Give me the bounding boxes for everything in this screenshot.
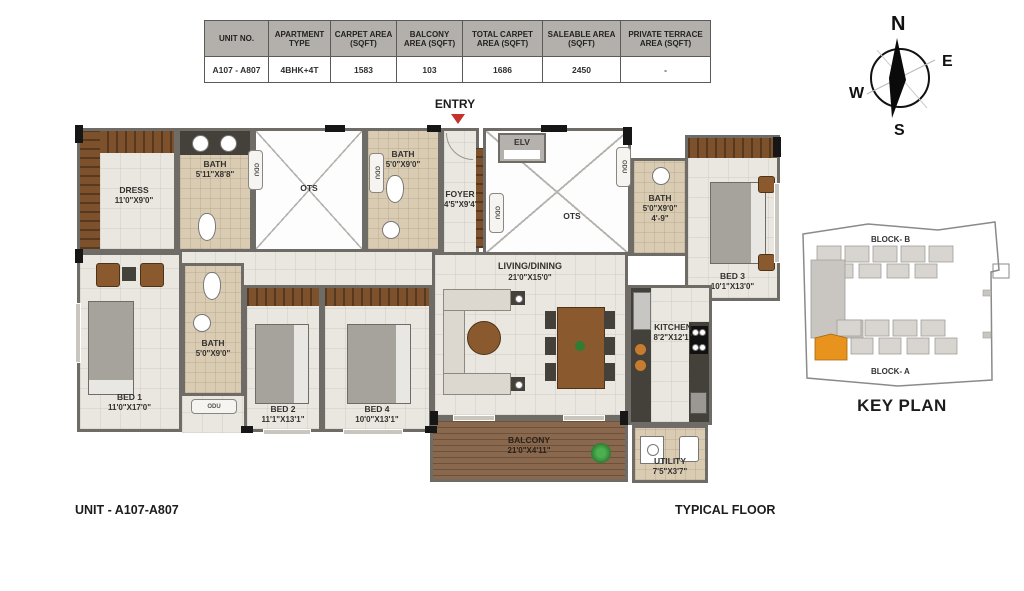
balcony-door	[453, 415, 495, 421]
room-label: BED 1	[80, 392, 179, 403]
col-carpet-area: CARPET AREA (SQFT)	[331, 21, 397, 57]
dining-chair	[545, 311, 556, 329]
entry-label: ENTRY	[425, 97, 485, 111]
site-mark	[983, 290, 991, 296]
room-balcony: BALCONY 21'0"X4'11"	[430, 418, 628, 482]
room-label: BED 3	[688, 271, 777, 282]
wall-column	[325, 125, 345, 132]
cell-apartment-type: 4BHK+4T	[269, 57, 331, 83]
highlighted-unit	[815, 334, 847, 360]
compass-w: W	[849, 85, 865, 102]
block-b-label: BLOCK- B	[871, 235, 910, 244]
stove-burner	[635, 344, 646, 355]
sofa-graphic	[443, 373, 511, 395]
wall-column	[241, 426, 253, 433]
odu-shaft-label: ODU	[616, 147, 631, 187]
kitchen-sink	[690, 392, 707, 414]
bed-graphic	[710, 182, 766, 264]
side-table	[122, 267, 136, 281]
room-dim: 5'11"X8'8"	[180, 170, 250, 180]
col-saleable-area: SALEABLE AREA (SQFT)	[543, 21, 621, 57]
bed-graphic	[255, 324, 309, 404]
room-bed2: BED 2 11'1"X13'1"	[244, 285, 322, 432]
balcony-door	[563, 415, 605, 421]
window	[75, 303, 81, 363]
cell-private-terrace: -	[621, 57, 711, 83]
room-label: BATH	[634, 193, 686, 204]
room-bed4: BED 4 10'0"X13'1"	[322, 285, 432, 432]
room-bed1: BED 1 11'0"X17'0"	[77, 252, 182, 432]
wall-column	[620, 411, 628, 425]
room-dim: 7'5"X3'7"	[635, 467, 705, 477]
wall-column	[75, 249, 83, 263]
sink-icon	[652, 167, 670, 185]
odu-shaft-label: ODU	[489, 193, 504, 233]
unit-spec-table: UNIT NO. APARTMENT TYPE CARPET AREA (SQF…	[204, 20, 711, 83]
window	[263, 429, 311, 435]
toilet-icon	[198, 213, 216, 241]
armchair	[96, 263, 120, 287]
col-unit-no: UNIT NO.	[205, 21, 269, 57]
room-label: UTILITY	[635, 456, 705, 467]
dining-chair	[604, 311, 615, 329]
wardrobe-strip	[325, 288, 429, 306]
key-plan: BLOCK- B BLOCK- A	[793, 212, 1011, 394]
window	[774, 183, 780, 263]
wall-column	[427, 125, 441, 132]
odu-shaft-label: ODU	[191, 399, 237, 414]
vanity-counter	[180, 131, 250, 155]
wardrobe-strip	[247, 288, 319, 306]
toilet-icon	[386, 175, 404, 203]
sink-icon	[382, 221, 400, 239]
room-label: BED 4	[325, 404, 429, 415]
col-total-carpet: TOTAL CARPET AREA (SQFT)	[463, 21, 543, 57]
compass-s: S	[894, 122, 905, 138]
block-a-label: BLOCK- A	[871, 367, 910, 376]
window	[343, 429, 403, 435]
table-header-row: UNIT NO. APARTMENT TYPE CARPET AREA (SQF…	[205, 21, 711, 57]
room-label: DRESS	[94, 185, 174, 196]
stool	[511, 291, 525, 305]
room-dim: 5'0"X9'0"	[634, 204, 686, 214]
dining-chair	[604, 337, 615, 355]
room-living-dining: LIVING/DINING 21'0"X15'0"	[432, 252, 628, 418]
sink-icon	[193, 314, 211, 332]
room-bath-bed1: BATH 5'0"X9'0"	[182, 263, 244, 396]
room-bath-dress: BATH 5'11"X8'8"	[177, 128, 253, 252]
room-label: OTS	[516, 211, 628, 222]
compass-rose: N E W S	[843, 8, 958, 138]
col-private-terrace: PRIVATE TERRACE AREA (SQFT)	[621, 21, 711, 57]
unit-range-label: UNIT - A107-A807	[75, 503, 179, 517]
sofa-graphic	[443, 289, 511, 311]
room-dim: 11'0"X9'0"	[94, 196, 174, 206]
dining-chair	[545, 363, 556, 381]
col-balcony-area: BALCONY AREA (SQFT)	[397, 21, 463, 57]
room-dim: 11'1"X13'1"	[247, 415, 319, 425]
bed-graphic	[347, 324, 411, 404]
room-kitchen: KITCHEN 8'2"X12'1"	[628, 285, 712, 425]
room-ots-right: ELV OTS	[483, 128, 631, 256]
wall-column	[430, 411, 438, 425]
door-arc	[446, 133, 473, 160]
toilet-icon	[203, 272, 221, 300]
room-label: KITCHEN	[637, 322, 709, 333]
floorplan: DRESS 11'0"X9'0" BATH 5'11"X8'8" OTS BAT…	[75, 123, 782, 485]
room-dim: 4'5"X9'4"	[444, 200, 476, 210]
compass-n: N	[891, 13, 905, 35]
dining-chair	[545, 337, 556, 355]
odu-shaft-label: ODU	[369, 153, 384, 193]
wall-column	[623, 127, 632, 145]
cell-unit-no: A107 - A807	[205, 57, 269, 83]
key-plan-title: KEY PLAN	[793, 396, 1011, 416]
plant-icon	[575, 341, 585, 351]
stove-burner	[635, 360, 646, 371]
plant-icon	[591, 443, 611, 463]
room-dim-note: 4'-9"	[634, 214, 686, 224]
cell-total-carpet: 1686	[463, 57, 543, 83]
room-foyer: FOYER 4'5"X9'4"	[441, 128, 479, 266]
room-bath-bed3: BATH 5'0"X9'0" 4'-9"	[631, 158, 689, 256]
wall-column	[425, 426, 437, 433]
room-utility: UTILITY 7'5"X3'7"	[632, 425, 708, 483]
room-label: BATH	[180, 159, 250, 170]
stool	[511, 377, 525, 391]
room-dim: 8'2"X12'1"	[637, 333, 709, 343]
wall-column	[541, 125, 567, 132]
room-dim: 11'0"X17'0"	[80, 403, 179, 413]
room-label: BATH	[185, 338, 241, 349]
site-mark	[983, 332, 991, 338]
armchair	[140, 263, 164, 287]
compass-e: E	[942, 53, 953, 70]
elevator: ELV	[498, 133, 546, 163]
room-dim: 5'0"X9'0"	[185, 349, 241, 359]
wall-column	[75, 125, 83, 143]
room-dim: 21'0"X15'0"	[435, 273, 625, 283]
wall-column	[773, 137, 781, 157]
sink-icon	[192, 135, 209, 152]
wardrobe-strip	[688, 138, 777, 158]
room-bed3: BED 3 10'1"X13'0"	[685, 135, 780, 301]
cell-saleable-area: 2450	[543, 57, 621, 83]
room-label: LIVING/DINING	[435, 261, 625, 273]
cell-carpet-area: 1583	[331, 57, 397, 83]
room-label: OTS	[256, 183, 362, 194]
room-label: ELV	[500, 137, 544, 148]
sink-icon	[220, 135, 237, 152]
room-dress: DRESS 11'0"X9'0"	[77, 128, 177, 252]
room-label: BED 2	[247, 404, 319, 415]
nightstand	[758, 254, 775, 271]
room-label: FOYER	[444, 189, 476, 200]
odu-shaft-label: ODU	[248, 150, 263, 190]
room-dim: 10'0"X13'1"	[325, 415, 429, 425]
coffee-table	[467, 321, 501, 355]
cell-balcony-area: 103	[397, 57, 463, 83]
bed-graphic	[88, 301, 134, 395]
table-data-row: A107 - A807 4BHK+4T 1583 103 1686 2450 -	[205, 57, 711, 83]
col-apartment-type: APARTMENT TYPE	[269, 21, 331, 57]
typical-floor-label: TYPICAL FLOOR	[675, 503, 775, 517]
nightstand	[758, 176, 775, 193]
dining-chair	[604, 363, 615, 381]
room-ots-left: OTS	[253, 128, 365, 252]
